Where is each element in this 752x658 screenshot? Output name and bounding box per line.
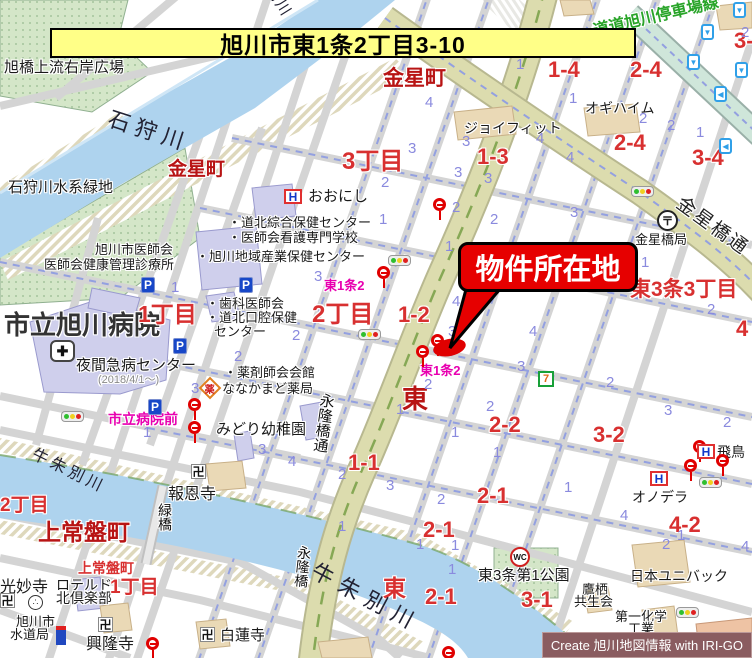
lot-number: 4 — [536, 131, 544, 146]
place-label: 白蓮寺 — [220, 628, 265, 643]
block-number: 4 — [736, 318, 748, 340]
lot-number: 3 — [314, 269, 322, 284]
district-label: 2丁目 — [312, 303, 373, 327]
lot-number: 1 — [696, 125, 704, 140]
district-label: 1丁目 — [110, 578, 159, 597]
district-label: 金星町 — [168, 160, 225, 179]
hotel-icon: H — [284, 189, 302, 204]
place-label: 夜間急病センター — [76, 358, 196, 373]
lot-number: 3 — [664, 403, 672, 418]
lot-number: 4 — [529, 324, 537, 339]
address-banner: 旭川市東1条2丁目3-10 — [50, 28, 636, 58]
lot-number: 3 — [408, 141, 416, 156]
banner-text: 旭川市東1条2丁目3-10 — [220, 26, 466, 60]
lot-number: 1 — [416, 537, 424, 552]
place-label: 水道局 — [10, 628, 49, 641]
hotel-icon: H — [650, 471, 668, 486]
lot-number: 2 — [424, 377, 432, 392]
lot-number: 1 — [445, 239, 453, 254]
place-label: 医師会健康管理診療所 — [44, 258, 174, 271]
place-label: 市立旭川病院 — [4, 312, 160, 338]
arrow-left-icon: ◀ — [714, 86, 727, 102]
place-label: 興隆寺 — [86, 637, 134, 653]
place-label: ・道北綜合保健センター — [228, 216, 371, 229]
pharmacy-icon: 薬 — [202, 380, 218, 396]
post-icon: 〒 — [657, 210, 678, 231]
lot-number: 3 — [454, 165, 462, 180]
block-number: 1-3 — [477, 146, 509, 168]
temple-icon: 卍 — [191, 464, 206, 479]
lot-number: 2 — [292, 328, 300, 343]
busstop-icon — [416, 345, 429, 367]
block-number: 2-4 — [630, 59, 662, 81]
seven-icon: 7 — [538, 371, 554, 387]
place-label: 共生会 — [574, 595, 613, 608]
arrow-down-icon: ▼ — [687, 54, 700, 70]
callout-text: 物件所在地 — [475, 246, 620, 288]
place-label: 北倶楽部 — [56, 591, 112, 605]
place-label: ジョイフィット — [464, 121, 562, 135]
lot-number: 1 — [451, 425, 459, 440]
place-label: (2018/4/1～) — [98, 375, 159, 386]
lot-number: 3 — [258, 442, 266, 457]
lot-number: 2 — [338, 467, 346, 482]
block-number: 1-1 — [348, 452, 380, 474]
monument-icon: ∴ — [28, 595, 43, 610]
property-location-callout: 物件所在地 — [458, 242, 638, 292]
lot-number: 1 — [379, 212, 387, 227]
arrow-down-icon: ▼ — [733, 2, 746, 18]
block-number: 2-4 — [614, 132, 646, 154]
place-label: おおにし — [308, 189, 368, 204]
place-label: ・医師会看護専門学校 — [228, 231, 358, 244]
hotel-icon: H — [697, 444, 715, 459]
lot-number: 2 — [452, 200, 460, 215]
lot-number: 3 — [517, 359, 525, 374]
block-number: 3-2 — [593, 424, 625, 446]
parking-icon: P — [173, 338, 187, 354]
busstop-icon — [146, 637, 159, 658]
traffic-icon — [676, 607, 699, 618]
map-credit: Create 旭川地図情報 with IRI-GO — [542, 632, 752, 658]
lot-number: 4 — [741, 539, 749, 554]
arrow-down-icon: ▼ — [701, 24, 714, 40]
lot-number: 1 — [451, 538, 459, 553]
road-label: 緑橋 — [158, 503, 172, 531]
district-label: 東3条3丁目 — [630, 279, 737, 300]
lot-number: 2 — [639, 111, 647, 126]
temple-icon: 卍 — [200, 627, 215, 642]
lot-number: 2 — [606, 375, 614, 390]
lot-number: 2 — [486, 399, 494, 414]
hospital-cross-icon: ✚ — [50, 340, 75, 362]
block-number: 1-2 — [398, 304, 430, 326]
lot-number: 3 — [191, 381, 199, 396]
lot-number: 2 — [707, 302, 715, 317]
lot-number: 3 — [570, 205, 578, 220]
busstop-icon — [716, 454, 729, 476]
lot-number: 1 — [493, 445, 501, 460]
block-number: 2-1 — [425, 586, 457, 608]
lot-number: 2 — [667, 118, 675, 133]
lot-number: 1 — [448, 562, 456, 577]
traffic-icon — [61, 411, 84, 422]
place-label: 旭橋上流右岸広場 — [4, 60, 124, 75]
district-label: 上常盤町 — [78, 561, 134, 575]
parking-icon: P — [148, 399, 162, 415]
traffic-icon — [699, 477, 722, 488]
place-label: みどり幼稚園 — [216, 422, 306, 437]
place-label: 旭川市医師会 — [95, 243, 173, 256]
lot-number: 3 — [386, 478, 394, 493]
wc-icon: WC — [510, 547, 530, 567]
parking-icon: P — [239, 277, 253, 293]
lot-number: 1 — [171, 280, 179, 295]
lot-number: 2 — [381, 175, 389, 190]
lot-number: 2 — [490, 212, 498, 227]
busstop-icon — [433, 198, 446, 220]
place-label: 石狩川水系緑地 — [8, 180, 113, 195]
arrow-down-icon: ▼ — [735, 62, 748, 78]
temple-icon: 卍 — [0, 593, 15, 608]
block-number: 2-2 — [489, 414, 521, 436]
district-label: 3丁目 — [342, 150, 403, 174]
district-label: 2丁目 — [0, 496, 49, 515]
road-label: 永隆橋 — [294, 545, 312, 588]
lot-number: 3 — [484, 171, 492, 186]
lot-number: 2 — [741, 25, 749, 40]
lot-number: 1 — [641, 255, 649, 270]
lot-number: 3 — [462, 134, 470, 149]
lot-number: 1 — [569, 91, 577, 106]
parking-icon: P — [141, 277, 155, 293]
lot-number: 1 — [677, 528, 685, 543]
block-number: 2-1 — [477, 485, 509, 507]
place-label: センター — [214, 325, 266, 338]
district-label: 金星町 — [383, 68, 446, 89]
place-label: オノデラ — [632, 490, 688, 504]
facility-icon — [56, 626, 66, 645]
place-label: 金星橋局 — [635, 233, 687, 246]
place-label: 東3条第1公園 — [478, 568, 570, 583]
callout-tail — [430, 280, 520, 360]
place-label: ななかまど薬局 — [222, 382, 313, 395]
traffic-icon — [388, 255, 411, 266]
busstop-icon — [188, 421, 201, 443]
place-label: 日本ユニバック — [630, 569, 728, 583]
lot-number: 1 — [338, 519, 346, 534]
traffic-icon — [631, 186, 654, 197]
place-label: 報恩寺 — [168, 487, 216, 503]
lot-number: 2 — [234, 349, 242, 364]
block-number: 3-1 — [521, 589, 553, 611]
lot-number: 2 — [437, 492, 445, 507]
busstop-icon — [377, 266, 390, 288]
place-label: ・歯科医師会 — [206, 297, 284, 310]
lot-number: 2 — [723, 415, 731, 430]
district-label: 1丁目 — [138, 303, 197, 326]
lot-number: 4 — [566, 150, 574, 165]
map-canvas[interactable]: 旭橋上流右岸広場石狩川水系緑地おおにし・道北綜合保健センター・医師会看護専門学校… — [0, 0, 752, 658]
lot-number: 1 — [396, 402, 404, 417]
lot-number: 1 — [143, 425, 151, 440]
place-label: ・道北口腔保健 — [206, 311, 297, 324]
busstop-icon — [188, 398, 201, 420]
lot-number: 4 — [425, 95, 433, 110]
temple-icon: 卍 — [98, 617, 113, 632]
place-label: ・旭川地域産業保健センター — [196, 250, 365, 263]
place-label: ・薬剤師会会館 — [224, 366, 315, 379]
block-number: 1-4 — [548, 59, 580, 81]
busstop-icon — [442, 646, 455, 658]
district-label: 上常盤町 — [38, 521, 130, 544]
lot-number: 4 — [288, 454, 296, 469]
lot-number: 1 — [516, 57, 524, 72]
traffic-icon — [358, 329, 381, 340]
busstop-icon — [684, 459, 697, 481]
lot-number: 1 — [564, 480, 572, 495]
lot-number: 4 — [620, 508, 628, 523]
arrow-left-icon: ◀ — [719, 138, 732, 154]
busstop-label: 東1条2 — [324, 279, 364, 292]
lot-number: 2 — [662, 537, 670, 552]
